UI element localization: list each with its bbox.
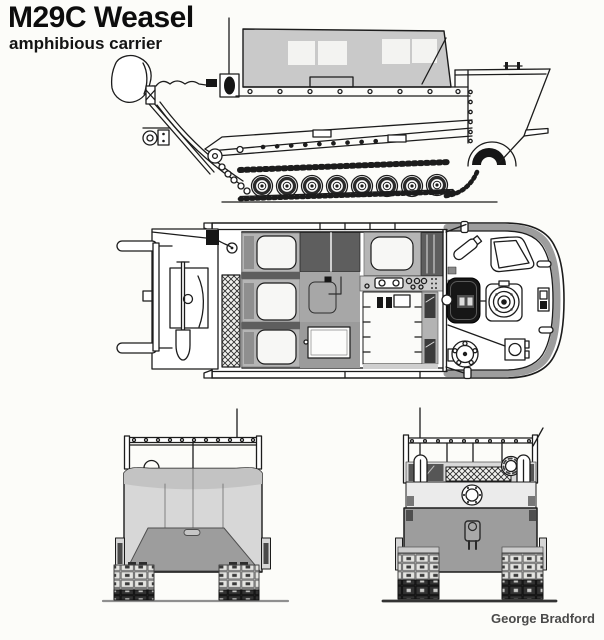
cargo-floor — [300, 233, 360, 369]
window-panel — [318, 41, 347, 65]
drawing-sheet: M29C Weasel amphibious carrier — [0, 0, 604, 640]
front-hull — [116, 468, 271, 572]
stern-float — [112, 56, 151, 103]
transom-hatch — [462, 485, 482, 505]
rear-view — [383, 408, 556, 601]
paddle-blade — [176, 330, 190, 360]
driver-seat — [371, 237, 413, 270]
driver-station — [360, 233, 443, 370]
crew-seat — [257, 236, 296, 269]
tow-pintle — [143, 128, 170, 145]
rudder-paddle — [117, 343, 157, 353]
spray-fin — [524, 129, 548, 137]
capstan — [486, 281, 522, 321]
side-view — [112, 18, 550, 202]
top-view — [117, 222, 564, 379]
window-panel — [382, 39, 410, 64]
technical-drawing — [0, 0, 604, 640]
windshield-frame — [125, 436, 262, 469]
road-wheel — [277, 176, 298, 197]
engine-cover — [442, 278, 480, 323]
antenna-base — [206, 230, 219, 245]
transom — [406, 482, 536, 508]
engine-grating — [222, 275, 240, 367]
rim-cleat — [537, 261, 551, 267]
crew-seat — [257, 330, 296, 364]
window-panel — [412, 39, 437, 63]
window-panel — [288, 41, 315, 65]
radio-rack — [421, 233, 443, 276]
instrument-panel — [360, 276, 443, 291]
rim-cleat — [539, 327, 553, 333]
bow-pulley — [505, 339, 529, 360]
steering-lever — [377, 297, 383, 308]
engine-grating — [446, 467, 511, 481]
stowage-box — [308, 327, 350, 358]
sponson — [205, 120, 472, 156]
steering-lever — [386, 297, 392, 308]
track — [208, 142, 516, 199]
crew-seat — [257, 283, 296, 320]
antenna — [220, 18, 239, 97]
road-wheel — [252, 176, 273, 197]
crew-seats — [242, 233, 300, 367]
artist-credit: George Bradford — [491, 611, 595, 626]
rim-cleat — [461, 222, 468, 233]
front-view — [103, 409, 288, 601]
canvas-top — [243, 29, 451, 87]
rim-cleat — [464, 368, 471, 379]
drive-sprocket — [208, 149, 222, 163]
rudder-paddle — [117, 241, 157, 251]
